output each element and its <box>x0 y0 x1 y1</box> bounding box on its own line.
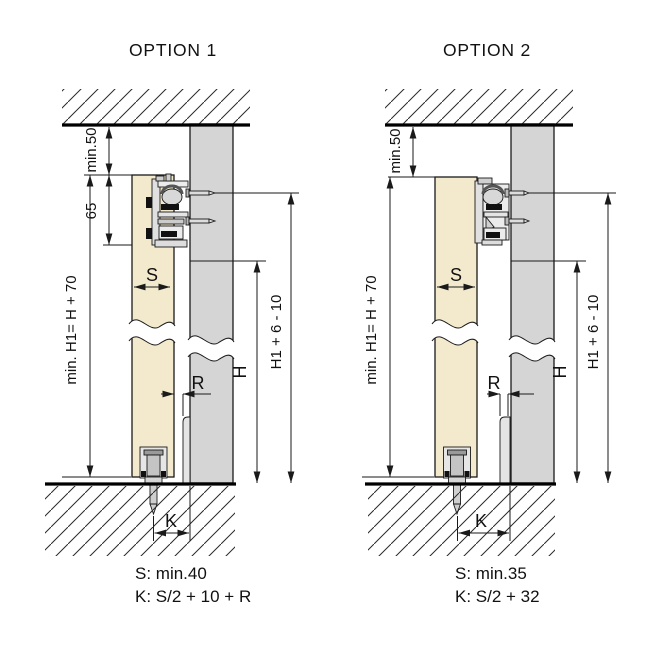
dim-label: K <box>165 511 177 531</box>
dim-label: H1 + 6 - 10 <box>268 295 285 370</box>
option2-formulas: S: min.35 K: S/2 + 32 <box>455 562 540 608</box>
dim-ceiling-clearance: min.50 <box>83 127 132 175</box>
floor-hatch <box>45 486 235 556</box>
dim-label: S <box>146 265 158 285</box>
ceiling-hatch <box>62 89 250 124</box>
dim-label: 65 <box>83 203 100 220</box>
dim-label: H1 + 6 - 10 <box>585 295 602 370</box>
dim-label: min.50 <box>387 128 404 173</box>
formula-s: S: min.40 <box>135 562 251 585</box>
dim-label: R <box>488 373 501 393</box>
diagram-canvas: min.50 65 min. H1= H + 70 S H <box>0 0 650 650</box>
option2-diagram: min.50 min. H1= H + 70 S H H1 + 6 - 10 <box>362 89 616 556</box>
formula-k: K: S/2 + 10 + R <box>135 585 251 608</box>
dim-door-height: min. H1= H + 70 <box>362 177 434 477</box>
door-bolt <box>146 197 152 208</box>
wall-section <box>511 124 554 483</box>
dim-label: H <box>550 366 570 379</box>
wall-section <box>190 124 233 483</box>
option1-diagram: min.50 65 min. H1= H + 70 S H <box>45 89 299 556</box>
dim-label: min. H1= H + 70 <box>63 275 80 384</box>
door-bolt <box>146 228 152 239</box>
dim-label: H <box>230 366 250 379</box>
option1-formulas: S: min.40 K: S/2 + 10 + R <box>135 562 251 608</box>
skirting-board <box>183 417 190 483</box>
skirting-board <box>500 417 510 483</box>
dim-label: min.50 <box>83 127 100 172</box>
dim-label: K <box>475 511 487 531</box>
formula-s: S: min.35 <box>455 562 540 585</box>
dim-label: R <box>192 373 205 393</box>
formula-k: K: S/2 + 32 <box>455 585 540 608</box>
dim-label: min. H1= H + 70 <box>363 275 380 384</box>
floor-hatch <box>368 486 555 556</box>
dim-ceiling-clearance: min.50 <box>387 127 435 177</box>
ceiling-hatch <box>385 89 573 124</box>
technical-drawing: OPTION 1 OPTION 2 <box>0 0 650 650</box>
dim-label: S <box>450 265 462 285</box>
